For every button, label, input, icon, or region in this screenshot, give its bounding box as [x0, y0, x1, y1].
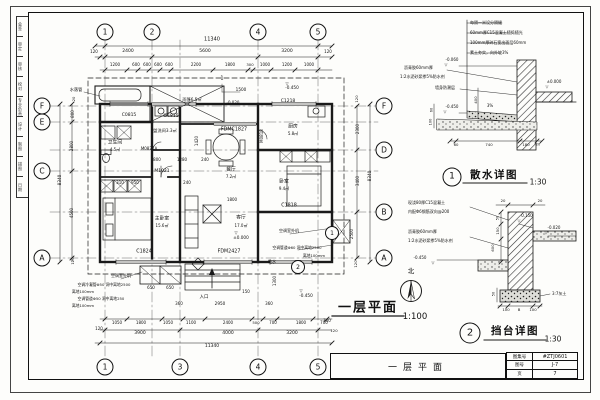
drawing-sheet: 1134012024005600320012012006006006006002… [0, 0, 600, 400]
outer-border-frame [10, 6, 591, 393]
